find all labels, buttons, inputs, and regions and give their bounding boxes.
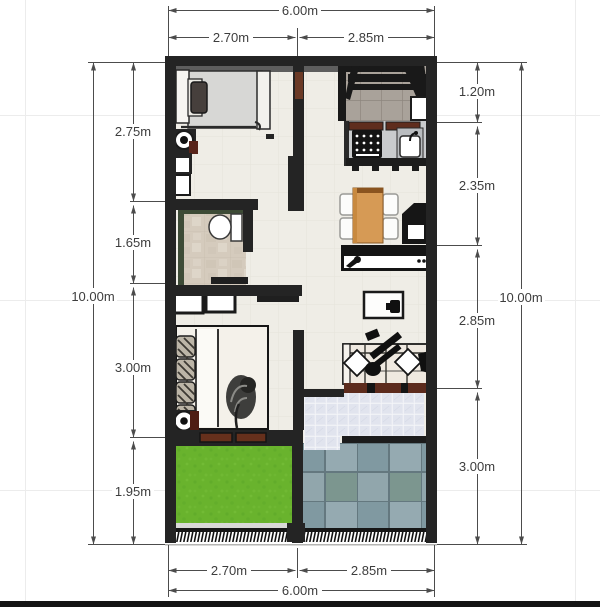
svg-text:1.20m: 1.20m	[459, 84, 495, 99]
svg-text:2.70m: 2.70m	[213, 30, 249, 45]
svg-text:2.70m: 2.70m	[211, 563, 247, 578]
svg-text:2.35m: 2.35m	[459, 178, 495, 193]
svg-text:1.95m: 1.95m	[115, 484, 151, 499]
svg-text:2.75m: 2.75m	[115, 124, 151, 139]
svg-text:6.00m: 6.00m	[282, 583, 318, 598]
svg-text:10.00m: 10.00m	[499, 290, 542, 305]
svg-text:3.00m: 3.00m	[115, 360, 151, 375]
svg-text:2.85m: 2.85m	[351, 563, 387, 578]
svg-text:2.85m: 2.85m	[348, 30, 384, 45]
svg-text:3.00m: 3.00m	[459, 459, 495, 474]
svg-text:1.65m: 1.65m	[115, 235, 151, 250]
svg-text:2.85m: 2.85m	[459, 313, 495, 328]
svg-text:6.00m: 6.00m	[282, 3, 318, 18]
svg-text:10.00m: 10.00m	[71, 289, 114, 304]
